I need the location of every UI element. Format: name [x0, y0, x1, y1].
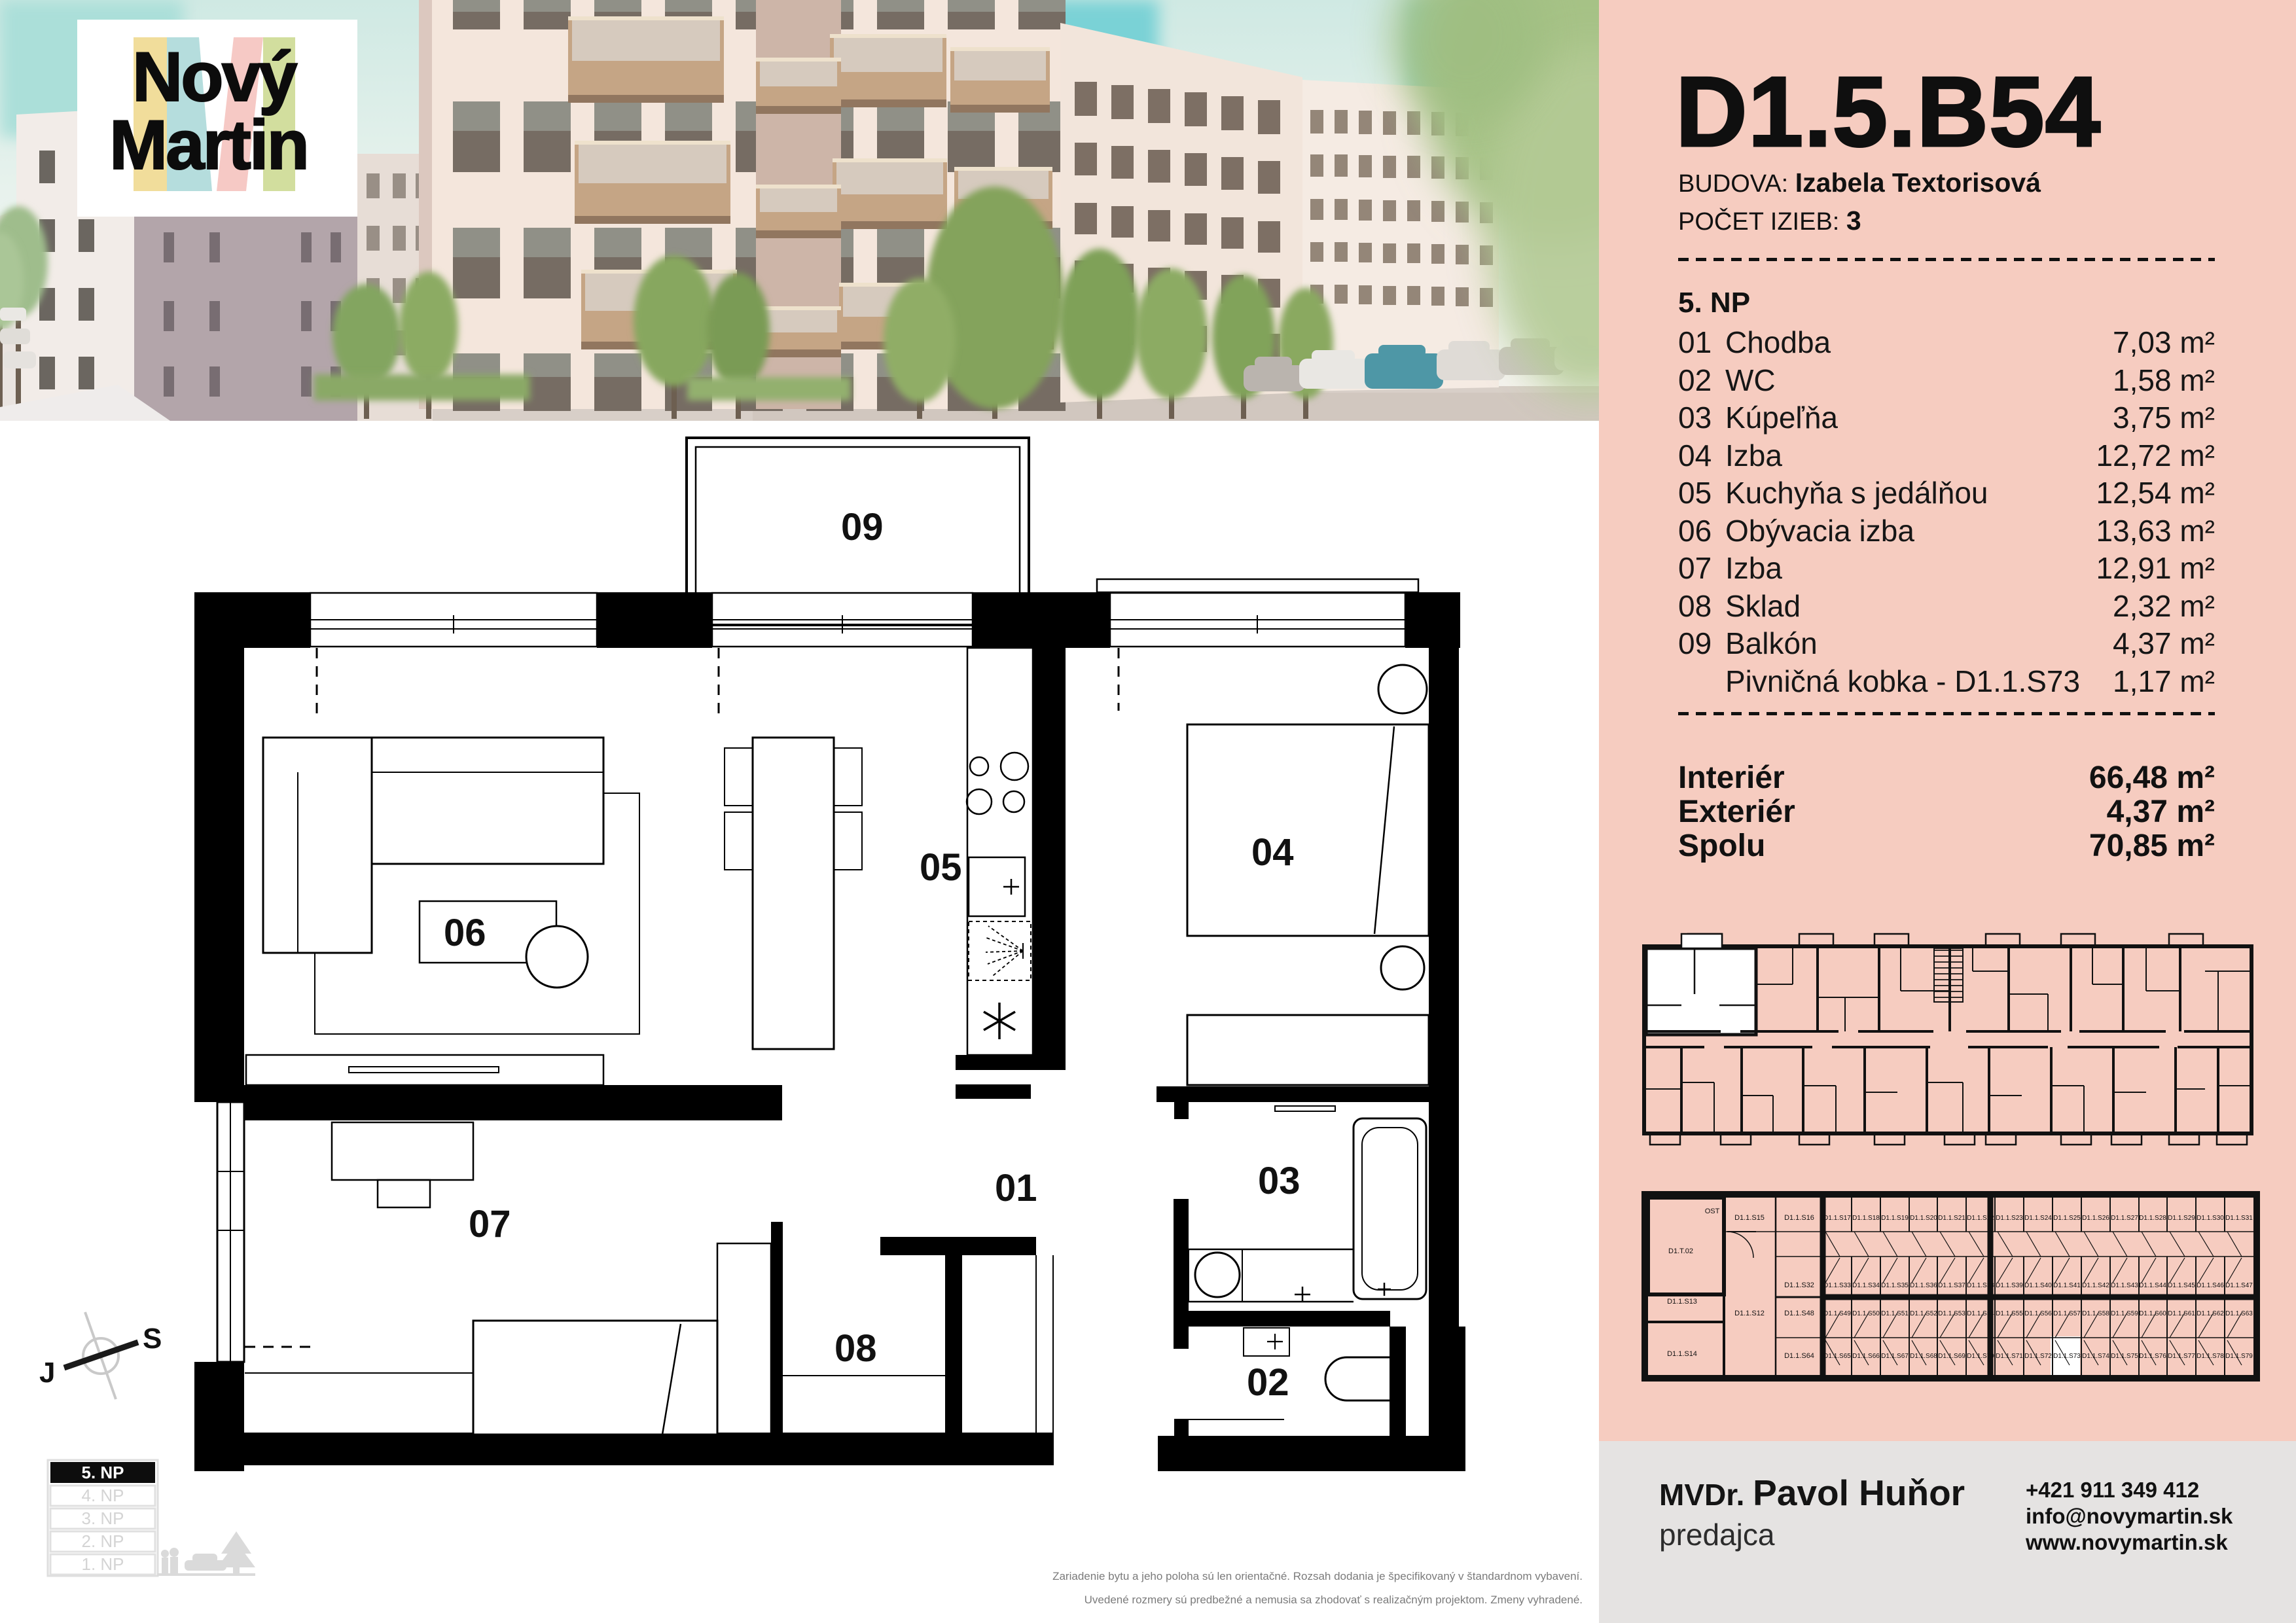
- svg-text:D1.1.S65: D1.1.S65: [1823, 1353, 1851, 1360]
- svg-text:J: J: [39, 1357, 55, 1389]
- svg-text:D1.1.S38: D1.1.S38: [1967, 1282, 1994, 1289]
- svg-text:D1.1.S41: D1.1.S41: [2053, 1282, 2081, 1289]
- svg-text:D1.1.S67: D1.1.S67: [1881, 1353, 1909, 1360]
- svg-text:D1.1.S21: D1.1.S21: [1938, 1215, 1965, 1222]
- svg-text:06: 06: [444, 912, 486, 954]
- svg-text:D1.1.S35: D1.1.S35: [1881, 1282, 1909, 1289]
- svg-text:03: 03: [1258, 1160, 1300, 1202]
- svg-text:D1.1.S44: D1.1.S44: [2139, 1282, 2166, 1289]
- svg-text:02: 02: [1247, 1361, 1289, 1404]
- svg-text:D1.1.S43: D1.1.S43: [2111, 1282, 2138, 1289]
- svg-text:D1.1.S72: D1.1.S72: [2024, 1353, 2052, 1360]
- svg-text:D1.1.S13: D1.1.S13: [1667, 1298, 1697, 1306]
- svg-text:D1.1.S20: D1.1.S20: [1910, 1215, 1937, 1222]
- svg-text:01: 01: [995, 1167, 1037, 1209]
- svg-text:D1.1.S16: D1.1.S16: [1784, 1214, 1814, 1222]
- svg-text:D1.1.S23: D1.1.S23: [1996, 1215, 2023, 1222]
- svg-text:D1.1.S66: D1.1.S66: [1852, 1353, 1880, 1360]
- svg-text:D1.1.S36: D1.1.S36: [1910, 1282, 1937, 1289]
- svg-text:D1.1.S79: D1.1.S79: [2225, 1353, 2253, 1360]
- svg-text:D1.T.02: D1.T.02: [1668, 1247, 1693, 1255]
- svg-text:D1.1.S70: D1.1.S70: [1967, 1353, 1994, 1360]
- svg-text:D1.1.S31: D1.1.S31: [2225, 1215, 2253, 1222]
- svg-text:D1.1.S62: D1.1.S62: [2197, 1310, 2224, 1317]
- svg-text:OST: OST: [1705, 1207, 1720, 1215]
- svg-text:D1.1.S40: D1.1.S40: [2024, 1282, 2052, 1289]
- svg-text:D1.1.S24: D1.1.S24: [2024, 1215, 2052, 1222]
- svg-text:D1.1.S22: D1.1.S22: [1967, 1215, 1994, 1222]
- svg-text:D1.1.S75: D1.1.S75: [2111, 1353, 2138, 1360]
- svg-text:D1.1.S39: D1.1.S39: [1996, 1282, 2023, 1289]
- svg-text:D1.1.S18: D1.1.S18: [1852, 1215, 1880, 1222]
- svg-text:D1.1.S37: D1.1.S37: [1938, 1282, 1965, 1289]
- svg-text:D1.1.S42: D1.1.S42: [2082, 1282, 2109, 1289]
- svg-text:D1.1.S28: D1.1.S28: [2139, 1215, 2166, 1222]
- svg-text:D1.1.S47: D1.1.S47: [2225, 1282, 2253, 1289]
- svg-text:D1.1.S73: D1.1.S73: [2053, 1353, 2081, 1360]
- svg-text:S: S: [143, 1323, 162, 1355]
- svg-text:1. NP: 1. NP: [81, 1554, 124, 1574]
- svg-text:D1.1.S32: D1.1.S32: [1784, 1281, 1814, 1289]
- svg-text:D1.1.S71: D1.1.S71: [1996, 1353, 2023, 1360]
- svg-text:D1.1.S29: D1.1.S29: [2168, 1215, 2195, 1222]
- svg-text:D1.1.S54: D1.1.S54: [1967, 1310, 1994, 1317]
- svg-text:09: 09: [841, 506, 884, 548]
- svg-text:D1.1.S68: D1.1.S68: [1910, 1353, 1937, 1360]
- svg-text:D1.1.S48: D1.1.S48: [1784, 1310, 1814, 1317]
- svg-text:D1.1.S76: D1.1.S76: [2139, 1353, 2166, 1360]
- svg-text:D1.1.S12: D1.1.S12: [1734, 1310, 1765, 1317]
- svg-text:D1.1.S55: D1.1.S55: [1996, 1310, 2023, 1317]
- svg-text:D1.1.S46: D1.1.S46: [2197, 1282, 2224, 1289]
- svg-text:D1.1.S53: D1.1.S53: [1938, 1310, 1965, 1317]
- svg-text:D1.1.S69: D1.1.S69: [1938, 1353, 1965, 1360]
- svg-text:D1.1.S15: D1.1.S15: [1734, 1214, 1765, 1222]
- svg-text:D1.1.S27: D1.1.S27: [2111, 1215, 2138, 1222]
- svg-text:4. NP: 4. NP: [81, 1486, 124, 1505]
- svg-text:D1.1.S30: D1.1.S30: [2197, 1215, 2224, 1222]
- svg-text:D1.1.S74: D1.1.S74: [2082, 1353, 2109, 1360]
- svg-text:D1.1.S14: D1.1.S14: [1667, 1350, 1697, 1358]
- svg-text:2. NP: 2. NP: [81, 1531, 124, 1551]
- svg-text:D1.1.S17: D1.1.S17: [1823, 1215, 1851, 1222]
- svg-text:05: 05: [920, 846, 962, 889]
- svg-text:D1.1.S34: D1.1.S34: [1852, 1282, 1880, 1289]
- svg-text:07: 07: [469, 1203, 511, 1245]
- svg-text:D1.1.S61: D1.1.S61: [2168, 1310, 2195, 1317]
- svg-text:D1.1.S19: D1.1.S19: [1881, 1215, 1909, 1222]
- svg-text:5. NP: 5. NP: [81, 1463, 124, 1482]
- svg-text:D1.1.S33: D1.1.S33: [1823, 1282, 1851, 1289]
- svg-text:D1.1.S78: D1.1.S78: [2197, 1353, 2224, 1360]
- svg-text:08: 08: [834, 1327, 877, 1370]
- svg-text:D1.1.S26: D1.1.S26: [2082, 1215, 2109, 1222]
- svg-text:D1.1.S25: D1.1.S25: [2053, 1215, 2081, 1222]
- svg-text:D1.1.S60: D1.1.S60: [2139, 1310, 2166, 1317]
- svg-text:D1.1.S77: D1.1.S77: [2168, 1353, 2195, 1360]
- svg-text:3. NP: 3. NP: [81, 1508, 124, 1528]
- svg-text:04: 04: [1251, 831, 1294, 874]
- svg-text:D1.1.S45: D1.1.S45: [2168, 1282, 2195, 1289]
- svg-text:D1.1.S64: D1.1.S64: [1784, 1352, 1814, 1360]
